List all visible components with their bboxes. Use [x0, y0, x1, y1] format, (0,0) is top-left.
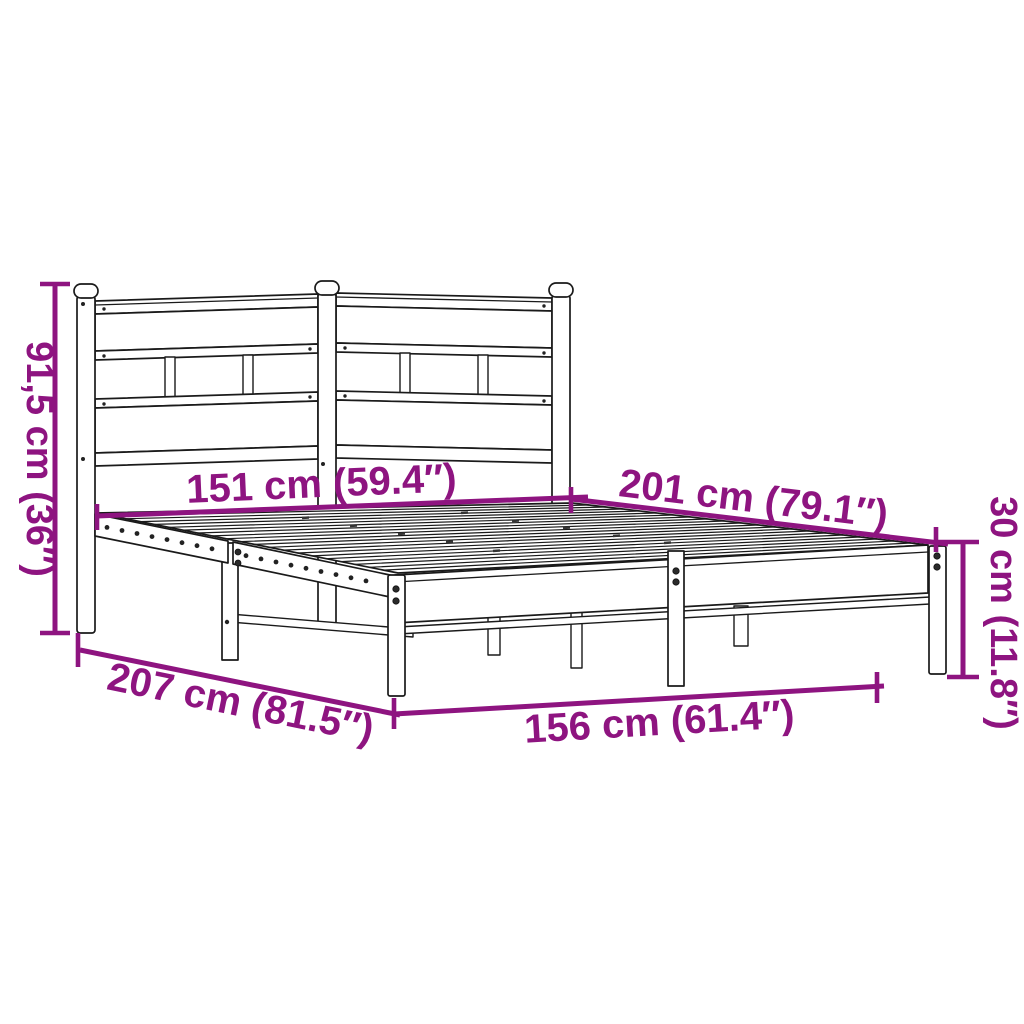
- post-cap: [549, 283, 573, 297]
- bed-frame-dimension-diagram: 91,5 cm (36″) 151 cm (59.4″) 201 cm (79.…: [0, 0, 1024, 1024]
- dimension-frame-height-label: 30 cm (11.8″): [982, 496, 1024, 730]
- headboard-spacer-bar: [165, 357, 175, 398]
- diagram-canvas: 91,5 cm (36″) 151 cm (59.4″) 201 cm (79.…: [0, 0, 1024, 1024]
- far-foot-leg: [929, 546, 946, 674]
- headboard-spacer-bar: [400, 353, 410, 395]
- dimension-height: 91,5 cm (36″): [18, 284, 70, 633]
- headboard-left-section: [95, 294, 318, 466]
- dimension-foot-width-label: 156 cm (61.4″): [523, 692, 796, 751]
- headboard-left-post: [74, 284, 98, 633]
- near-foot-leg: [388, 575, 405, 696]
- post-cap: [315, 281, 339, 295]
- headboard-right-section: [336, 293, 552, 463]
- headboard-spacer-bar: [478, 355, 488, 396]
- headboard-right-post: [549, 283, 573, 513]
- dimension-height-label: 91,5 cm (36″): [18, 341, 60, 577]
- post-cap: [74, 284, 98, 298]
- dimension-length-floor: 207 cm (81.5″): [78, 633, 400, 752]
- dimension-length-floor-label: 207 cm (81.5″): [104, 655, 378, 752]
- dimension-foot-width: 156 cm (61.4″): [394, 672, 884, 752]
- dimension-frame-height: 30 cm (11.8″): [934, 496, 1024, 730]
- foot-middle-leg: [668, 551, 684, 686]
- headboard-spacer-bar: [243, 355, 253, 396]
